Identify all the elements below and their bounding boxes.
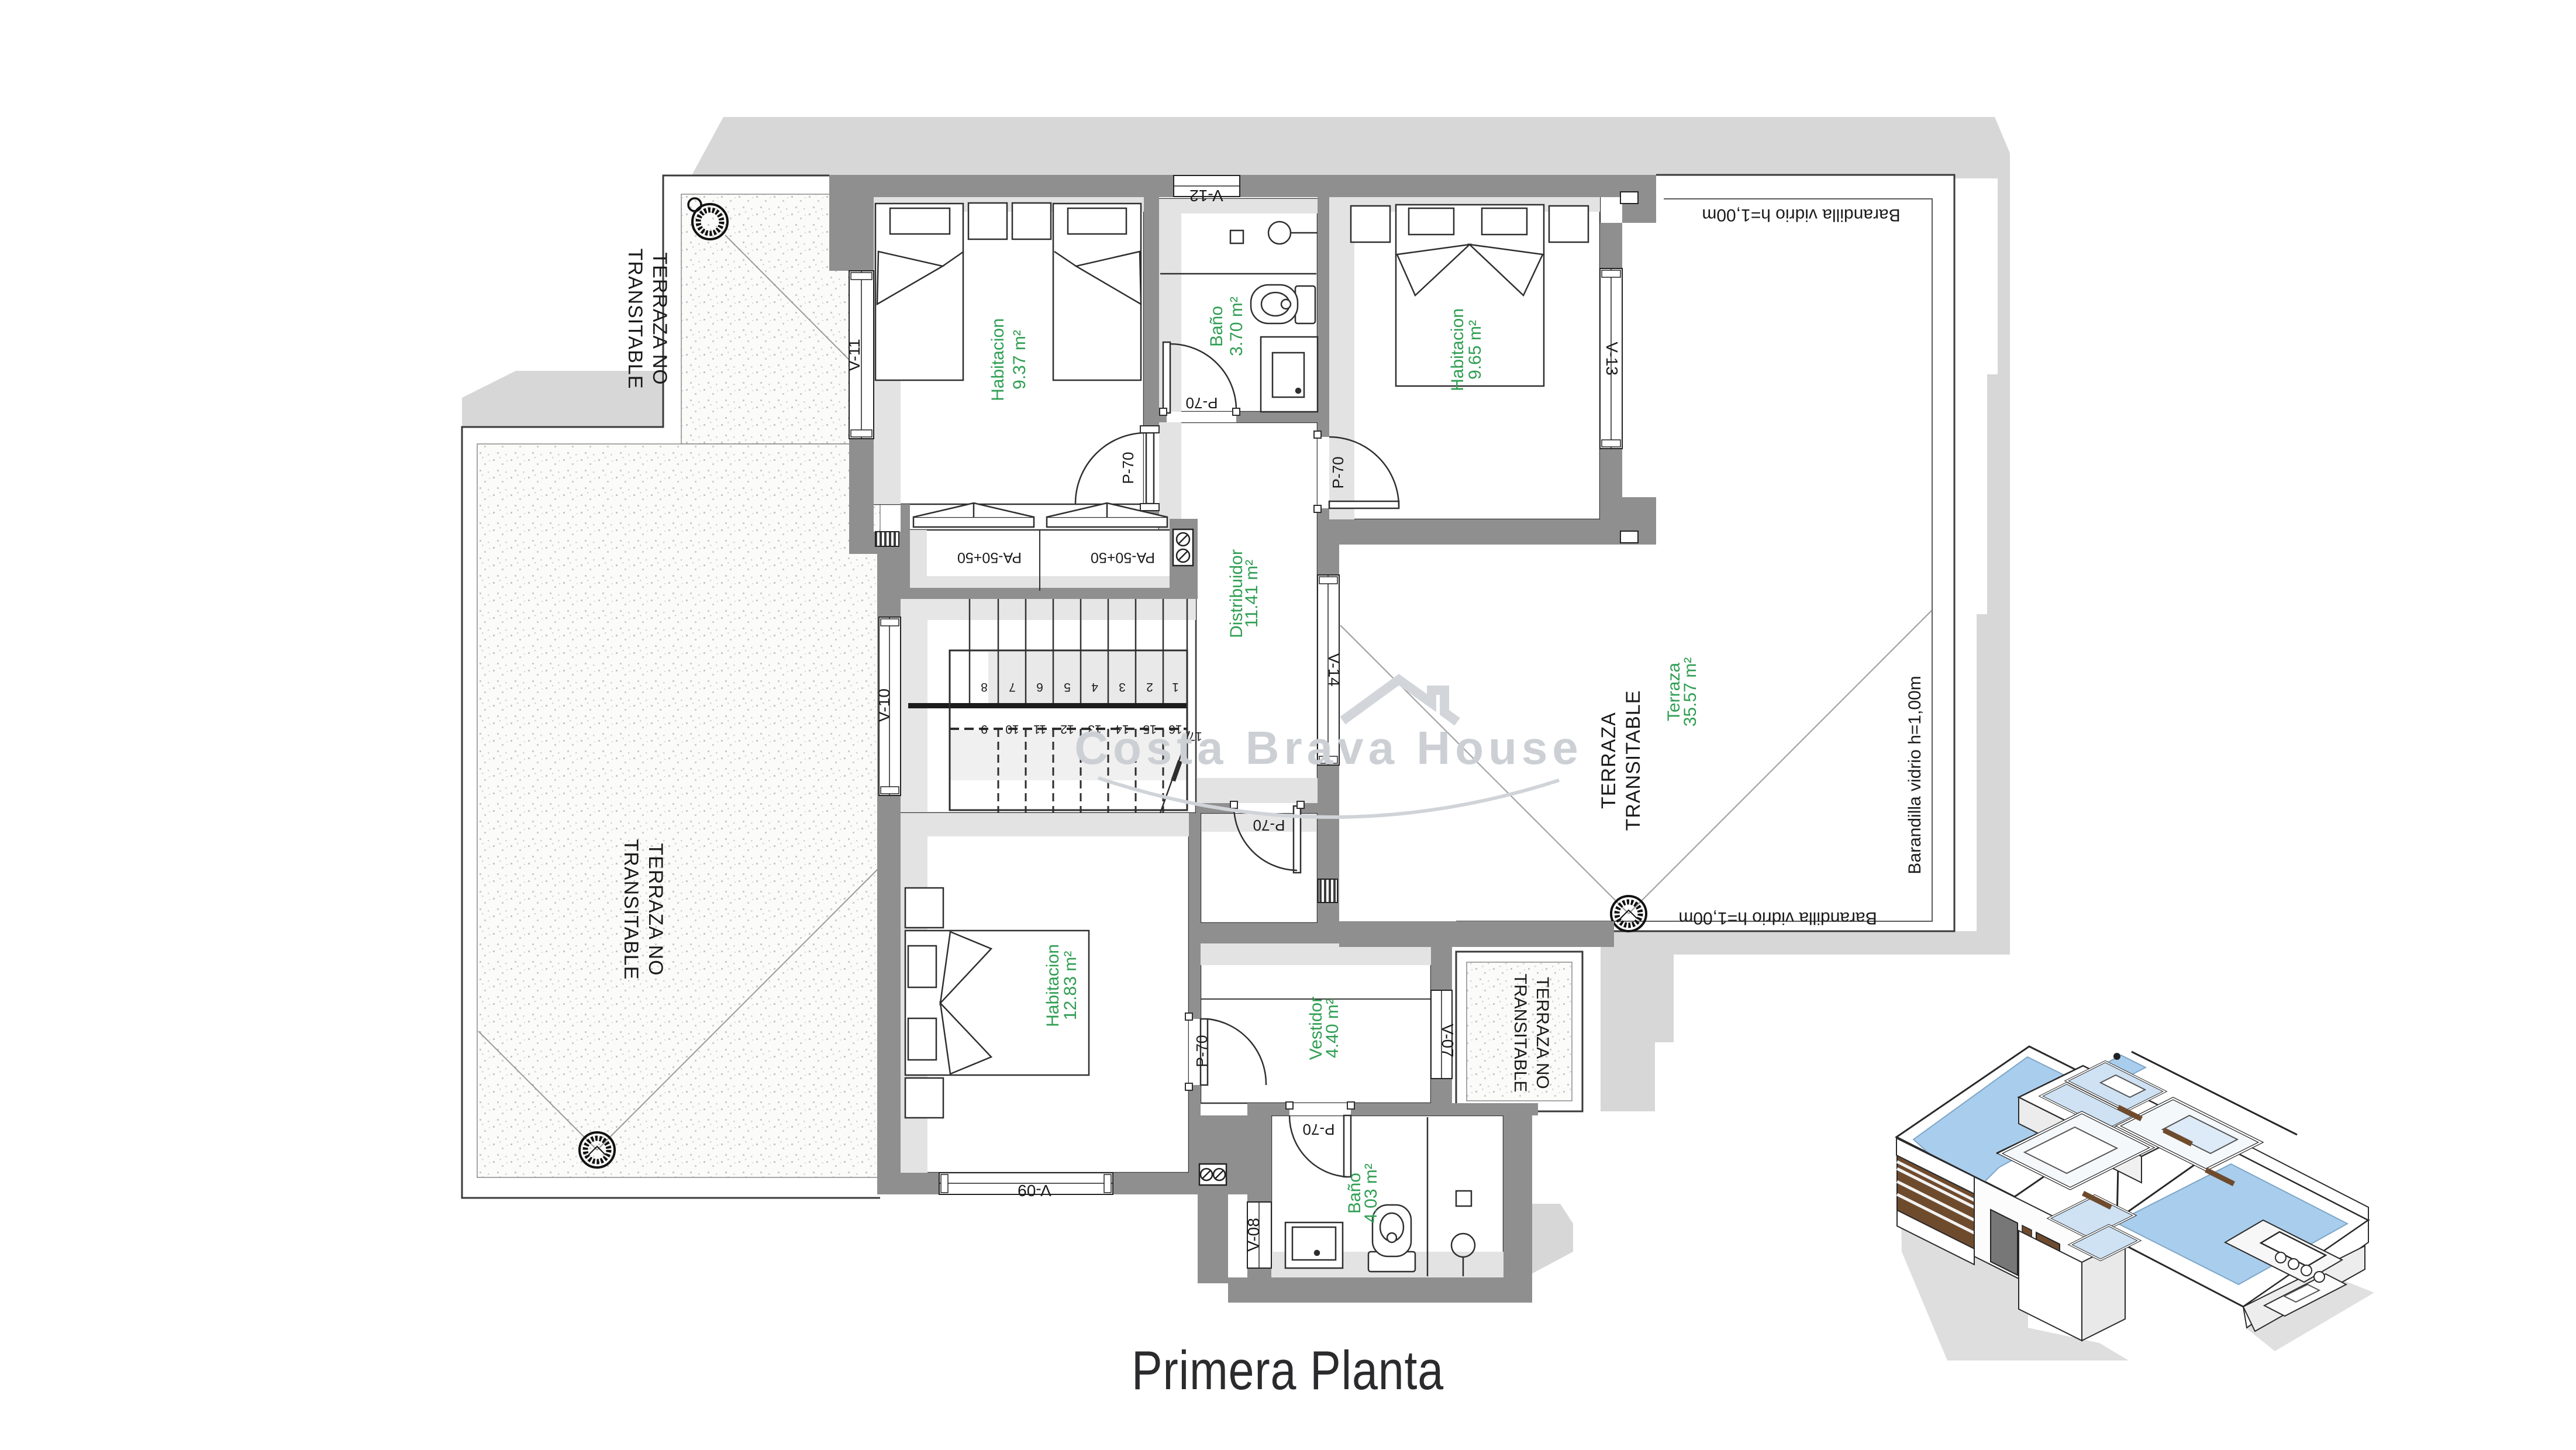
svg-text:PA-50+50: PA-50+50 bbox=[1091, 549, 1155, 566]
svg-text:P-70: P-70 bbox=[1253, 817, 1285, 834]
svg-text:V-07: V-07 bbox=[1439, 1024, 1457, 1058]
svg-text:4.40 m²: 4.40 m² bbox=[1323, 998, 1342, 1058]
svg-text:Barandilla vidrio h=1,00m: Barandilla vidrio h=1,00m bbox=[1905, 676, 1925, 874]
svg-text:V-14: V-14 bbox=[1325, 653, 1343, 687]
svg-text:9.65 m²: 9.65 m² bbox=[1465, 320, 1485, 380]
svg-text:9.37 m²: 9.37 m² bbox=[1010, 330, 1029, 390]
svg-text:11.41 m²: 11.41 m² bbox=[1242, 560, 1261, 628]
svg-text:10: 10 bbox=[1005, 722, 1019, 736]
svg-text:4.03 m²: 4.03 m² bbox=[1361, 1163, 1381, 1223]
svg-text:V-12: V-12 bbox=[1189, 187, 1223, 205]
svg-text:P-70: P-70 bbox=[1119, 452, 1137, 484]
svg-text:12: 12 bbox=[1060, 722, 1074, 736]
svg-text:TERRAZA NO: TERRAZA NO bbox=[649, 252, 671, 385]
svg-text:P-70: P-70 bbox=[1303, 1121, 1335, 1138]
svg-text:11: 11 bbox=[1033, 722, 1046, 736]
svg-text:4: 4 bbox=[1091, 680, 1098, 694]
svg-text:3.70 m²: 3.70 m² bbox=[1227, 297, 1246, 356]
svg-text:5: 5 bbox=[1064, 680, 1071, 694]
svg-text:Costa Brava House: Costa Brava House bbox=[1074, 722, 1583, 774]
svg-text:Habitacion: Habitacion bbox=[1043, 944, 1063, 1027]
svg-text:TERRAZA NO: TERRAZA NO bbox=[644, 843, 667, 976]
svg-text:8: 8 bbox=[981, 680, 988, 694]
svg-text:1: 1 bbox=[1172, 680, 1179, 694]
svg-text:7: 7 bbox=[1009, 680, 1016, 694]
svg-text:V-08: V-08 bbox=[1244, 1218, 1263, 1252]
svg-text:12.83 m²: 12.83 m² bbox=[1061, 951, 1080, 1020]
svg-text:V-10: V-10 bbox=[875, 688, 893, 722]
svg-text:Baño: Baño bbox=[1207, 306, 1226, 347]
svg-text:P-70: P-70 bbox=[1193, 1035, 1211, 1067]
svg-text:Primera Planta: Primera Planta bbox=[1132, 1340, 1444, 1401]
svg-text:Barandilla vidrio h=1,00m: Barandilla vidrio h=1,00m bbox=[1702, 205, 1900, 225]
svg-text:6: 6 bbox=[1036, 680, 1043, 694]
svg-text:TERRAZA NO: TERRAZA NO bbox=[1533, 977, 1552, 1089]
svg-text:Habitacion: Habitacion bbox=[1448, 308, 1467, 391]
svg-text:P-70: P-70 bbox=[1329, 457, 1347, 489]
svg-text:TERRAZA: TERRAZA bbox=[1598, 712, 1620, 809]
svg-text:3: 3 bbox=[1119, 680, 1126, 694]
svg-text:TRANSITABLE: TRANSITABLE bbox=[1511, 974, 1530, 1093]
svg-text:PA-50+50: PA-50+50 bbox=[957, 549, 1022, 566]
svg-text:P-70: P-70 bbox=[1186, 394, 1218, 412]
svg-text:V-11: V-11 bbox=[845, 339, 863, 371]
svg-text:9: 9 bbox=[981, 722, 988, 736]
svg-text:V-09: V-09 bbox=[1018, 1182, 1051, 1200]
svg-text:TRANSITABLE: TRANSITABLE bbox=[1622, 690, 1644, 831]
svg-text:V-13: V-13 bbox=[1603, 342, 1621, 376]
svg-text:TRANSITABLE: TRANSITABLE bbox=[620, 839, 642, 980]
svg-text:Barandilla vidrio h=1,00m: Barandilla vidrio h=1,00m bbox=[1678, 908, 1877, 928]
svg-text:TRANSITABLE: TRANSITABLE bbox=[624, 249, 646, 390]
svg-text:2: 2 bbox=[1146, 680, 1153, 694]
svg-text:Habitacion: Habitacion bbox=[988, 318, 1008, 401]
svg-text:35.57 m²: 35.57 m² bbox=[1681, 657, 1700, 726]
